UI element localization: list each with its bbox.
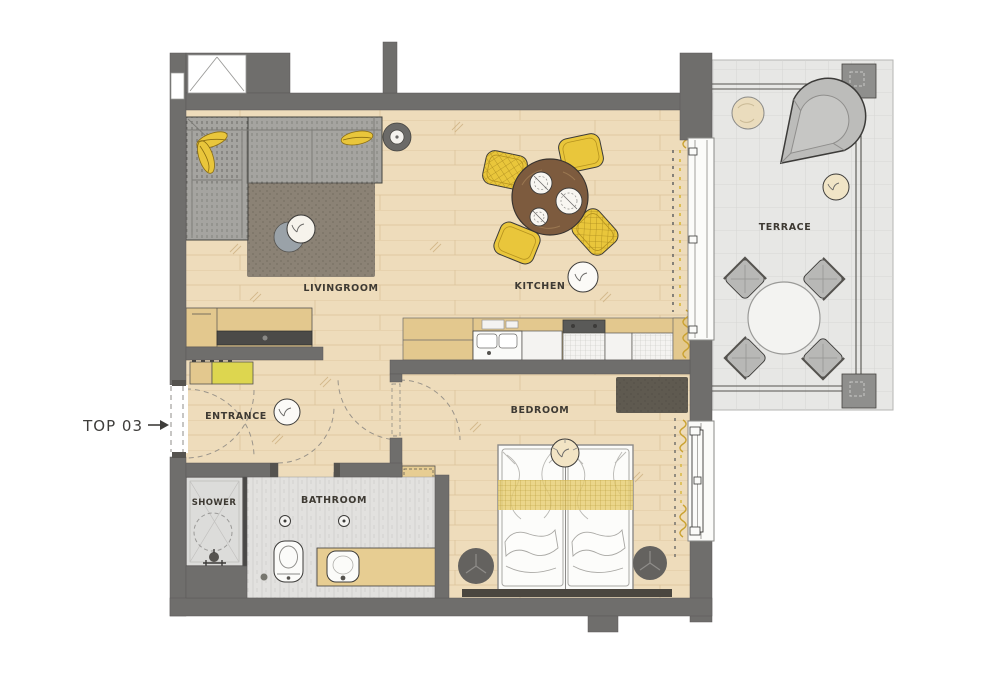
terrace-side-table — [823, 174, 849, 200]
wall-left-upper — [170, 53, 186, 385]
place-setting-1 — [530, 172, 552, 194]
wall-kitchen-bedroom — [390, 360, 690, 374]
unit-label: TOP 03 — [82, 417, 143, 435]
wall-bathroom-right — [435, 475, 449, 598]
terrace-pouf — [732, 97, 764, 129]
tv-sideboard — [186, 308, 312, 347]
floor-drain — [261, 574, 268, 581]
toilet — [274, 541, 303, 582]
dining-table — [512, 159, 588, 235]
kitchen-cabinet-4-front — [632, 333, 673, 360]
terrace-post-bottom — [842, 374, 876, 408]
entrance-label: ENTRANCE — [205, 411, 267, 422]
place-setting-3 — [530, 208, 548, 226]
wall-bottom-stub — [588, 616, 618, 632]
bed-headboard — [462, 589, 672, 597]
terrace-dining-table — [748, 282, 820, 354]
wall-bathroom-top-right — [334, 463, 402, 477]
terrace: TERRACE — [712, 60, 893, 410]
kitchen-terrace-door — [688, 138, 714, 340]
terrace-label: TERRACE — [759, 222, 812, 233]
wall-bedroom-door-stub — [390, 374, 402, 382]
place-setting-2 — [556, 188, 582, 214]
unit-callout: TOP 03 — [82, 417, 169, 435]
kitchen-cabinet-3 — [605, 333, 632, 360]
bedroom-pouf-right — [633, 546, 667, 580]
wall-right-mid — [690, 340, 712, 423]
bed-throw-grid — [498, 480, 633, 510]
kitchen-cabinet-1 — [522, 331, 562, 360]
kitchen-cooktop — [563, 320, 605, 333]
bedroom-window — [688, 421, 714, 541]
wall-shower-divider — [243, 477, 247, 566]
bathroom-door-tick-left — [270, 463, 278, 477]
floorplan-drawing: TERRACE — [0, 0, 1000, 696]
entrance-door — [168, 380, 188, 458]
livingroom-label: LIVINGROOM — [303, 283, 378, 294]
bedside-table — [551, 439, 579, 467]
bedroom-label: BEDROOM — [511, 405, 570, 416]
kitchen-cabinet-5 — [673, 318, 690, 360]
kitchen-label: KITCHEN — [515, 281, 566, 292]
mattress-right — [568, 449, 629, 586]
kitchen-plant-stand — [568, 262, 598, 292]
entrance-cabinet — [190, 362, 212, 384]
bathroom-door-tick-right — [334, 463, 340, 477]
arrow-right-icon — [148, 420, 169, 430]
entrance-plant-stand — [274, 399, 300, 425]
floorplan-page: TERRACE — [0, 0, 1000, 696]
kitchen-cabinet-2-front — [563, 333, 605, 360]
entrance-bench — [212, 362, 253, 384]
wall-shaft-opening — [171, 73, 184, 99]
wall-left-lower — [170, 457, 186, 616]
kitchen-counter — [403, 318, 690, 360]
wall-living-entrance — [186, 347, 323, 360]
bedroom-rug-texture — [616, 377, 688, 413]
bedroom-pouf-left — [458, 548, 494, 584]
shower: SHOWER — [186, 477, 243, 566]
radiator — [690, 427, 703, 535]
wall-topright-block — [680, 53, 712, 140]
vanity — [317, 548, 437, 586]
coffee-table-white — [287, 215, 315, 243]
mattress-left — [502, 449, 563, 586]
wall-top — [186, 93, 712, 110]
bathroom-label: BATHROOM — [301, 495, 367, 506]
shower-label: SHOWER — [192, 498, 237, 508]
sofa-side-table — [383, 123, 411, 151]
sink-faucet — [341, 576, 346, 581]
wall-below-shower — [186, 566, 247, 598]
wall-top-stub — [383, 42, 397, 93]
wall-bathroom-top-left — [186, 463, 278, 477]
wall-bottom — [170, 598, 712, 616]
